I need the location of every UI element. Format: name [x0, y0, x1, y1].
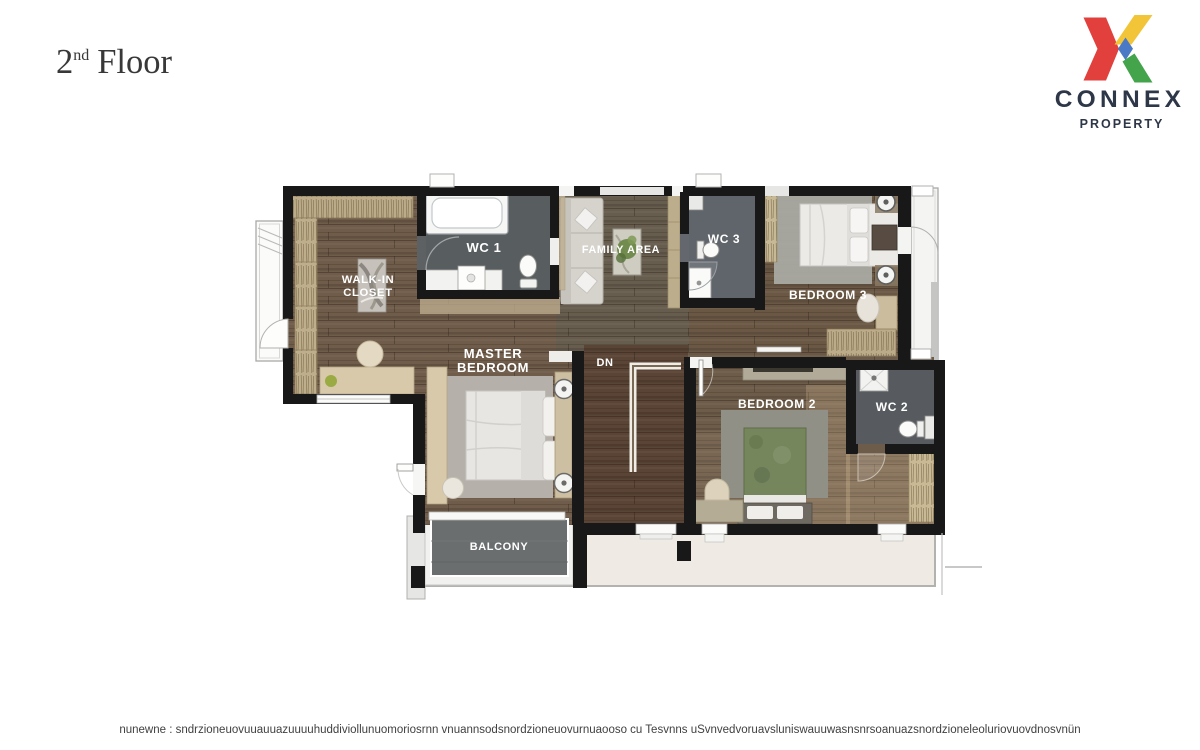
svg-text:BEDROOM: BEDROOM: [457, 360, 529, 375]
svg-text:CONNEX: CONNEX: [1055, 86, 1186, 113]
svg-text:BEDROOM 3: BEDROOM 3: [789, 288, 867, 302]
svg-text:nunewne : sndrzioneuovuuauuazu: nunewne : sndrzioneuovuuauuazuuuuhuddivi…: [119, 724, 1080, 736]
svg-text:MASTER: MASTER: [464, 346, 523, 361]
svg-text:WC 3: WC 3: [708, 232, 740, 246]
svg-text:WC 1: WC 1: [467, 240, 502, 255]
svg-text:DN: DN: [596, 357, 613, 369]
svg-text:BEDROOM 2: BEDROOM 2: [738, 397, 816, 411]
svg-text:BALCONY: BALCONY: [470, 541, 529, 553]
svg-text:PROPERTY: PROPERTY: [1080, 117, 1165, 131]
svg-text:WC 2: WC 2: [876, 400, 908, 414]
svg-text:CLOSET: CLOSET: [343, 287, 392, 299]
svg-text:WALK-IN: WALK-IN: [342, 274, 395, 286]
svg-text:FAMILY AREA: FAMILY AREA: [582, 244, 660, 256]
